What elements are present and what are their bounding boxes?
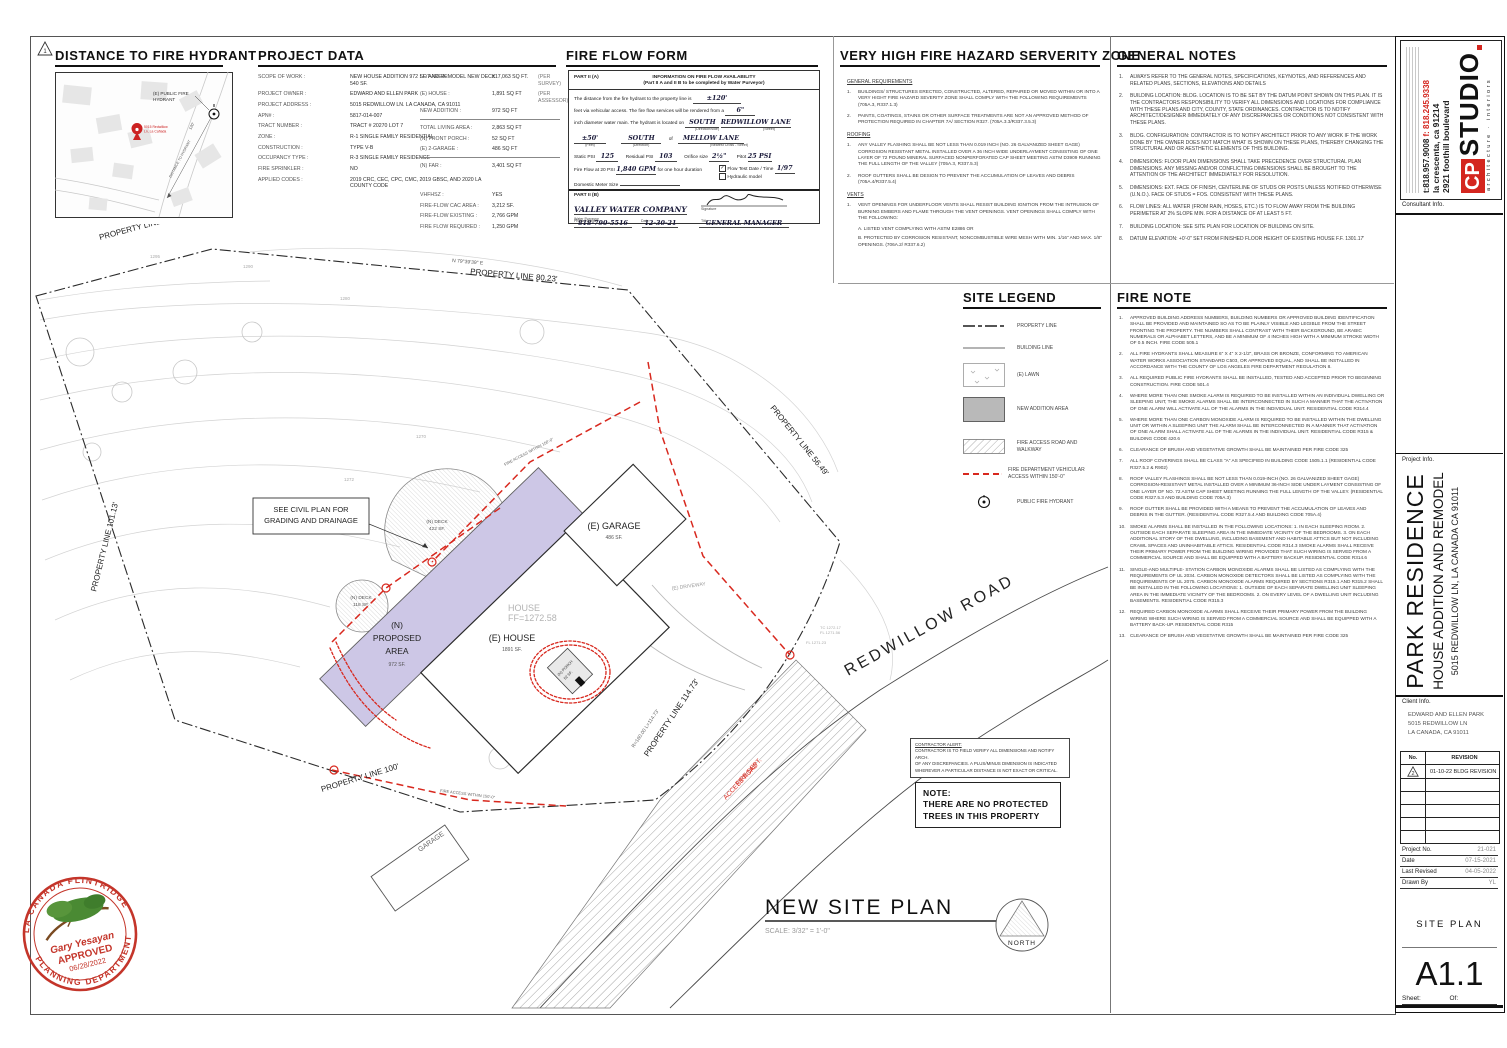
- field-value: NO: [350, 166, 358, 173]
- general-note-item: ALWAYS REFER TO THE GENERAL NOTES, SPECI…: [1117, 74, 1385, 87]
- project-data-row: FIRE FLOW REQUIRED : 1,250 GPM: [420, 224, 560, 231]
- vhfhsz-body: GENERAL REQUIREMENTS BUILDINGS/ STRUCTUR…: [845, 72, 1103, 248]
- hydrant-map-title: DISTANCE TO FIRE HYDRANT: [55, 48, 257, 63]
- field-label: (E) 2-GARAGE :: [420, 146, 492, 153]
- field-label: PROJECT OWNER :: [258, 91, 350, 98]
- fire-note-title: FIRE NOTE: [1117, 290, 1192, 305]
- field-value: EDWARD AND ELLEN PARK: [350, 91, 418, 98]
- general-note-item: DIMENSIONS: FLOOR PLAN DIMENSIONS SHALL …: [1117, 159, 1385, 179]
- building-line-symbol: [963, 345, 1005, 351]
- fire-note-item: APPROVED BUILDING ADDRESS NUMBERS, BUILD…: [1117, 315, 1385, 346]
- caption: Date: [641, 219, 649, 223]
- caption: Signature: [701, 207, 716, 211]
- form-text: Flow Test Date / Time: [727, 167, 773, 172]
- static-psi-value: 125: [596, 153, 618, 162]
- note-item: ROOF GUTTERS SHALL BE DESIGN TO PREVENT …: [845, 173, 1103, 186]
- caption: (Direction): [619, 143, 663, 147]
- field-value: 3,401 SQ FT: [492, 163, 538, 170]
- field-value: 2,766 GPM: [492, 213, 538, 220]
- detail-marker: 1: [36, 40, 54, 58]
- fire-flow-form: PART II (A) INFORMATION ON FIRE FLOW AVA…: [568, 70, 820, 224]
- firm-city: la crescenta, ca 91214: [1431, 45, 1441, 193]
- legend-label: PROPERTY LINE: [1017, 323, 1057, 330]
- note-item: VENT OPENINGS FOR UNDERFLOOR VENTS SHALL…: [845, 202, 1103, 221]
- field-label: CONSTRUCTION :: [258, 145, 350, 152]
- part-a-subheading: (Part II A and II B to be completed by W…: [619, 81, 789, 87]
- field-value: ±17,063 SQ FT.: [492, 74, 538, 87]
- general-notes-list: ALWAYS REFER TO THE GENERAL NOTES, SPECI…: [1117, 74, 1385, 249]
- fire-note-item: ROOF GUTTER SHALL BE PROVIDED WITH A MEA…: [1117, 506, 1385, 519]
- field-value: 1,250 GPM: [492, 224, 538, 231]
- lawn-symbol: [963, 363, 1005, 387]
- legend-label: NEW ADDITION AREA: [1017, 406, 1068, 413]
- last-revised-value: 04-05-2022: [1465, 869, 1496, 875]
- client-info-block: EDWARD AND ELLEN PARK 5015 REDWILLOW LN …: [1408, 711, 1484, 738]
- fire-note-list: APPROVED BUILDING ADDRESS NUMBERS, BUILD…: [1117, 315, 1385, 644]
- form-text: Fire Flow at 20 PSI: [574, 168, 615, 173]
- svg-text:2: 2: [1411, 771, 1414, 777]
- vhfhsz-title-rule: [840, 65, 1100, 67]
- fire-note-item: ALL ROOF COVERINGS SHALL BE CLASS "A" AS…: [1117, 458, 1385, 471]
- fire-flow-group: VHFHSZ : YES FIRE-FLOW CAC AREA : 3,212 …: [420, 192, 560, 231]
- project-data-row: TOTAL LIVING AREA : 2,863 SQ FT: [420, 125, 560, 132]
- vhfhsz-vents-list: VENT OPENINGS FOR UNDERFLOOR VENTS SHALL…: [845, 202, 1103, 221]
- date-value: 07-15-2021: [1465, 858, 1496, 864]
- fire-note-item: REQUIRED CARBON MONOXIDE ALARMS SHALL RE…: [1117, 609, 1385, 628]
- vhfhsz-vents-extra: A. LISTED VENT COMPLYING WITH ASTM E2886…: [845, 226, 1103, 248]
- fire-note-item: SMOKE ALARMS SHALL BE INSTALLED IN THE F…: [1117, 524, 1385, 562]
- vhfhsz-roofing-list: ANY VALLEY FLASHING SHALL BE NOT LESS TH…: [845, 142, 1103, 185]
- legend-label: (E) LAWN: [1017, 372, 1039, 379]
- hydrant-map-title-rule: [55, 65, 223, 67]
- general-note-item: BUILDING LOCATION: BLDG. LOCATION IS TO …: [1117, 93, 1385, 126]
- project-data-row: FIRE-FLOW EXISTING : 2,766 GPM: [420, 213, 560, 220]
- fire-note-title-rule: [1117, 307, 1387, 309]
- protected-trees-note-box: NOTE: THERE ARE NO PROTECTED TREES IN TH…: [915, 782, 1061, 828]
- client-address-2: LA CANADA, CA 91011: [1408, 729, 1484, 738]
- field-value: YES: [492, 192, 538, 199]
- logo-dot: [1477, 45, 1482, 50]
- notes-column-divider: [1110, 36, 1111, 1013]
- note-subitem: B. PROTECTED BY CORROSION RESISTANT, NON…: [858, 235, 1103, 248]
- vhfhsz-roofing-heading: ROOFING: [847, 132, 1103, 138]
- field-value: 1,891 SQ FT: [492, 91, 538, 104]
- project-data-row: (E) HOUSE : 1,891 SQ FT (PER ASSESSOR): [420, 91, 560, 104]
- fire-note-item: CLEARANCE OF BRUSH AND VEGETATIVE GROWTH…: [1117, 633, 1385, 639]
- general-note-item: DATUM ELEVATION: +0'-0" SET FROM FINISHE…: [1117, 236, 1385, 243]
- date-label: Date: [1402, 858, 1415, 864]
- svg-text:5015 Redwillow: 5015 Redwillow: [144, 125, 168, 129]
- part-b-label: PART II (B): [574, 193, 599, 199]
- fire-note-item: CLEARANCE OF BRUSH AND VEGETATIVE GROWTH…: [1117, 447, 1385, 453]
- contractor-alert-box: CONTRACTOR ALERT: CONTRACTOR IS TO FIELD…: [910, 738, 1070, 778]
- field-value: 3,212 SF.: [492, 203, 538, 210]
- area-group-1: LOT AREA : ±17,063 SQ FT. (PER SURVEY) (…: [420, 74, 560, 115]
- fire-note-item: ALL REQUIRED PUBLIC FIRE HYDRANTS SHALL …: [1117, 375, 1385, 388]
- form-text: Static PSI: [574, 155, 595, 160]
- title-block: t:818.957.9008 f: 818.245.9338 la cresce…: [1395, 36, 1505, 1013]
- note-line: THERE ARE NO PROTECTED: [923, 799, 1053, 810]
- svg-text:HYDRANT: HYDRANT: [153, 97, 175, 102]
- drawn-by-value: YL: [1489, 880, 1496, 886]
- flow-test-date: 1/97: [775, 165, 795, 174]
- divider: [420, 157, 560, 158]
- field-label: PROJECT ADDRESS :: [258, 102, 350, 109]
- field-label: NEW ADDITION :: [420, 108, 492, 115]
- note-item: BUILDINGS/ STRUCTURES ERECTED, CONSTRUCT…: [845, 89, 1103, 108]
- fire-note-item: SINGLE-AND MULTIPLE- STATION CARBON MONO…: [1117, 567, 1385, 605]
- form-text: The distance from the fire hydrant to th…: [574, 97, 692, 102]
- contractor-alert-line: OF ANY DISCREPANCIES. A PLUS/MINUS DIMEN…: [915, 761, 1065, 767]
- project-no-value: 21-021: [1477, 847, 1496, 853]
- fire-note-item: ROOF VALLEY FLASHINGS SHALL BE NOT LESS …: [1117, 476, 1385, 501]
- revision-triangle-icon: 2: [1407, 766, 1419, 777]
- field-label: FIRE-FLOW EXISTING :: [420, 213, 492, 220]
- svg-text:1: 1: [43, 49, 47, 55]
- field-value: 52 SQ FT: [492, 136, 538, 143]
- project-data-row: (N) FAR : 3,401 SQ FT: [420, 163, 560, 170]
- form-text: Pitot: [737, 155, 747, 160]
- rev-header: REVISION: [1426, 752, 1499, 764]
- hydraulic-model-checkbox: [719, 173, 726, 180]
- project-data-row: NEW ADDITION : 972 SQ FT: [420, 108, 560, 115]
- form-text: Orifice size: [684, 155, 708, 160]
- note-line: TREES IN THIS PROPERTY: [923, 811, 1053, 822]
- fire-flow-form-title: FIRE FLOW FORM: [566, 48, 688, 63]
- legend-top-rule: [838, 283, 1394, 284]
- vhfhsz-vents-heading: VENTS: [847, 192, 1103, 198]
- fire-note-item: WHERE MORE THAN ONE SMOKE ALARM IS REQUI…: [1117, 393, 1385, 412]
- part-a-label: PART II (A): [574, 75, 599, 81]
- orifice-value: 2½": [709, 153, 729, 162]
- revision-entry: 01-10-22 BLDG REVISION: [1426, 765, 1499, 778]
- field-label: APPLIED CODES :: [258, 177, 350, 190]
- new-addition-symbol: [963, 397, 1005, 422]
- vhfhsz-general-list: BUILDINGS/ STRUCTURES ERECTED, CONSTRUCT…: [845, 89, 1103, 125]
- firm-logo-studio: STUDIO: [1454, 52, 1485, 156]
- sheet-label: Sheet:: [1402, 995, 1450, 1005]
- general-note-item: FLOW LINES: ALL WATER (FROM RAIN, HOSES,…: [1117, 204, 1385, 217]
- distance-value: ±120': [693, 95, 741, 104]
- firm-logo-subtitle: architecture · interiors: [1486, 45, 1492, 191]
- general-note-item: DIMENSIONS: EXT. FACE OF FINISH, CENTERL…: [1117, 185, 1385, 198]
- fire-flow-value: 1,840 GPM: [616, 166, 656, 175]
- legend-label: FIRE ACCESS ROAD AND WALKWAY: [1017, 440, 1103, 453]
- general-notes-title-rule: [1117, 65, 1387, 67]
- field-label: (N) FAR :: [420, 163, 492, 170]
- project-data-row: LOT AREA : ±17,063 SQ FT. (PER SURVEY): [420, 74, 560, 87]
- form-text: inch diameter water main. The hydrant is…: [574, 121, 684, 126]
- field-label: (E) HOUSE :: [420, 91, 492, 104]
- residual-psi-value: 103: [655, 153, 677, 162]
- field-value: 486 SQ FT: [492, 146, 538, 153]
- form-text: of: [669, 137, 673, 142]
- site-legend: PROPERTY LINE BUILDING LINE (E) LAWN NEW…: [963, 315, 1103, 515]
- form-text: feet via vehicular access. The fire flow…: [574, 109, 724, 114]
- title-value: GENERAL MANAGER: [699, 219, 789, 228]
- field-label: LOT AREA :: [420, 74, 492, 87]
- sheet-number: A1.1: [1396, 955, 1503, 993]
- project-data-row: (N) FRONT PORCH : 52 SQ FT: [420, 136, 560, 143]
- project-data-title-rule: [258, 65, 556, 67]
- rev-no-header: No.: [1401, 752, 1426, 764]
- drawn-by-label: Drawn By: [1402, 880, 1428, 886]
- area-group-3: (N) FAR : 3,401 SQ FT: [420, 163, 560, 170]
- project-description: HOUSE ADDITION AND REMODEL: [1431, 471, 1446, 691]
- caption: (Nearest Cross - Street): [689, 143, 769, 147]
- sheet-info-rows: Project No. 21-021 Date 07-15-2021 Last …: [1400, 845, 1498, 889]
- revision-table: No. REVISION 2 01-10-22 BLDG REVISION: [1400, 751, 1500, 844]
- client-info-label: Client Info.: [1402, 699, 1431, 705]
- project-no-label: Project No.: [1402, 847, 1432, 853]
- vhfhsz-title: VERY HIGH FIRE HAZARD SERVERITY ZONE: [840, 48, 1141, 63]
- field-label: TRACT NUMBER :: [258, 123, 350, 130]
- project-name: PARK RESIDENCE: [1402, 471, 1429, 691]
- client-name: EDWARD AND ELLEN PARK: [1408, 711, 1484, 720]
- svg-text:(E) PUBLIC FIRE: (E) PUBLIC FIRE: [153, 91, 189, 96]
- field-label: TOTAL LIVING AREA :: [420, 125, 492, 132]
- field-label: FIRE-FLOW CAC AREA :: [420, 203, 492, 210]
- project-data-title: PROJECT DATA: [258, 48, 364, 63]
- field-label: SCOPE OF WORK :: [258, 74, 350, 87]
- fire-note-item: ALL FIRE HYDRANTS SHALL MEASURE 6" X 4" …: [1117, 351, 1385, 370]
- property-line-symbol: [963, 323, 1005, 329]
- contractor-alert-line: CONTRACTOR IS TO FIELD VERIFY ALL DIMENS…: [915, 748, 1065, 761]
- public-fire-hydrant-symbol: [963, 495, 1005, 509]
- divider: [420, 119, 560, 120]
- fire-access-road-symbol: [963, 439, 1005, 454]
- main-size-value: 6": [725, 107, 755, 116]
- sheet-title: SITE PLAN: [1396, 919, 1503, 930]
- field-value: R-3 SINGLE FAMILY RESIDENCE: [350, 155, 430, 162]
- general-note-item: BLDG. CONFIGURATION: CONTRACTOR IS TO NO…: [1117, 133, 1385, 153]
- project-data-row: FIRE-FLOW CAC AREA : 3,212 SF.: [420, 203, 560, 210]
- field-value: 2,863 SQ FT: [492, 125, 538, 132]
- form-text: Hydraulic model: [727, 175, 761, 180]
- field-label: FIRE SPRINKLER :: [258, 166, 350, 173]
- legend-label: FIRE DEPARTMENT VEHICULAR ACCESS WITHIN …: [1008, 467, 1103, 480]
- hydrant-vicinity-map: 120' DISTANCE TO HYDRANT (E) PUBLIC FIRE…: [55, 72, 233, 218]
- field-label: (N) FRONT PORCH :: [420, 136, 492, 143]
- note-heading: NOTE:: [923, 788, 1053, 799]
- caption: (Feet): [574, 143, 606, 147]
- project-data-row: VHFHSZ : YES: [420, 192, 560, 199]
- firm-logo-block: t:818.957.9008 f: 818.245.9338 la cresce…: [1400, 40, 1502, 200]
- field-value: TYPE V-B: [350, 145, 373, 152]
- last-revised-label: Last Revised: [1402, 869, 1437, 875]
- field-note: (PER ASSESSOR): [538, 91, 568, 104]
- svg-text:Ln, La Cañada: Ln, La Cañada: [144, 130, 166, 134]
- contractor-alert-line: WHEREVER A PARTICULAR DISTANCE IS NOT EX…: [915, 768, 1065, 774]
- field-label: FIRE FLOW REQUIRED :: [420, 224, 492, 231]
- project-info-label: Project Info.: [1402, 457, 1434, 463]
- site-legend-title-rule: [963, 307, 1101, 309]
- client-address-1: 5015 REDWILLOW LN: [1408, 720, 1484, 729]
- firm-street: 2921 foothill boulevard: [1441, 45, 1451, 193]
- legal-fine-print: [1406, 47, 1419, 193]
- field-value: TRACT # 20270 LOT 7: [350, 123, 403, 130]
- fire-flow-form-title-rule: [566, 65, 818, 67]
- firm-phone: t:818.957.9008: [1422, 139, 1431, 193]
- project-address: 5015 REDWILLOW LN, LA CANADA CA 91011: [1450, 471, 1460, 691]
- site-legend-title: SITE LEGEND: [963, 290, 1056, 305]
- field-label: VHFHSZ :: [420, 192, 492, 199]
- caption: (Direction/side): [687, 127, 727, 131]
- caption: Phone Number: [574, 219, 598, 223]
- fire-note-item: WHERE MORE THAN ONE CARBON MONOXIDE ALAR…: [1117, 417, 1385, 442]
- legend-label: BUILDING LINE: [1017, 345, 1053, 352]
- flow-test-checkbox: ✓: [719, 165, 726, 172]
- form-text: Residual PSI: [626, 155, 654, 160]
- field-note: (PER SURVEY): [538, 74, 561, 87]
- project-data-right: LOT AREA : ±17,063 SQ FT. (PER SURVEY) (…: [420, 74, 560, 235]
- field-label: OCCUPANCY TYPE :: [258, 155, 350, 162]
- approval-stamp: LA CANADA FLINTRIDGE PLANNING DEPARTMENT…: [18, 870, 142, 998]
- vhfhsz-divider: [833, 36, 834, 283]
- field-value: 5817-014-007: [350, 113, 382, 120]
- fire-dept-access-symbol: [963, 469, 1002, 479]
- of-label: Of:: [1450, 995, 1498, 1005]
- vhfhsz-general-heading: GENERAL REQUIREMENTS: [847, 79, 1103, 85]
- field-value: 972 SQ FT: [492, 108, 538, 115]
- site-plan-sheet: { "sheet": {"corner_marker": "1"}, "hydr…: [0, 0, 1507, 1048]
- firm-logo-cp: CP: [1461, 159, 1485, 193]
- note-subitem: A. LISTED VENT COMPLYING WITH ASTM E2886…: [858, 226, 1103, 232]
- project-data-row: (E) 2-GARAGE : 486 SQ FT: [420, 146, 560, 153]
- general-note-item: BUILDING LOCATION: SEE SITE PLAN FOR LOC…: [1117, 224, 1385, 231]
- consultant-info-label: Consultant Info.: [1402, 202, 1444, 208]
- form-text: Domestic Meter Size: [574, 183, 618, 188]
- general-notes-title: GENERAL NOTES: [1117, 48, 1237, 63]
- field-label: APN# :: [258, 113, 350, 120]
- area-group-2: TOTAL LIVING AREA : 2,863 SQ FT (N) FRON…: [420, 125, 560, 153]
- legend-label: PUBLIC FIRE HYDRANT: [1017, 499, 1073, 506]
- form-text: for one hour duration: [657, 168, 702, 173]
- caption: (Street): [739, 127, 799, 131]
- pitot-value: 25 PSI: [748, 153, 772, 162]
- firm-fax: f: 818.245.9338: [1422, 80, 1431, 137]
- note-item: ANY VALLEY FLASHING SHALL BE NOT LESS TH…: [845, 142, 1103, 167]
- caption: Title: [701, 219, 708, 223]
- part-a-heading: INFORMATION ON FIRE FLOW AVAILABILITY: [619, 75, 789, 81]
- note-item: PAINTS, COATINGS, STAINS OR OTHER SURFAC…: [845, 113, 1103, 126]
- field-label: ZONE :: [258, 134, 350, 141]
- project-info-block: PARK RESIDENCE HOUSE ADDITION AND REMODE…: [1396, 469, 1503, 693]
